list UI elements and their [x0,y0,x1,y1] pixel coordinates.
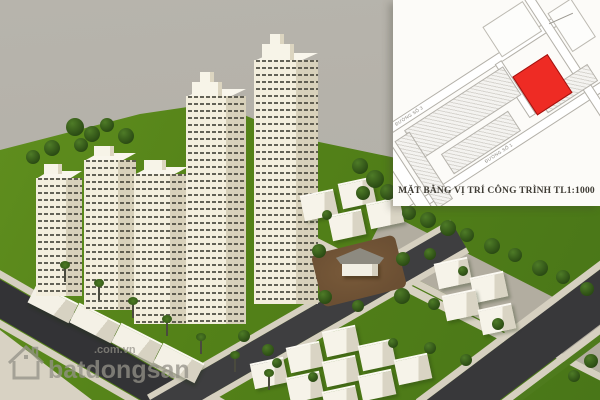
palm-tree [132,304,134,318]
watermark-suffix: .com.vn [94,344,136,356]
tower-crown [192,82,222,96]
tree [460,354,472,366]
tree [508,248,522,262]
tower-crown [94,146,114,156]
palm-tree [200,340,202,354]
tree [460,228,474,242]
tree [356,186,370,200]
tree [272,358,282,368]
tower-tall-1 [186,96,246,324]
tree [262,344,274,356]
palm-tree [166,322,168,336]
tower-left-3 [134,174,188,324]
tree [74,138,88,152]
tree [388,338,398,348]
house-icon [6,344,46,382]
tree [312,244,326,258]
palm-tree [64,268,66,282]
tree [322,210,332,220]
tree [568,370,580,382]
tower-crown [44,164,62,174]
tree [308,372,318,382]
tree [492,318,504,330]
tree [26,150,40,164]
tower-face [36,178,66,296]
tower-face [84,160,118,310]
tree [238,330,250,342]
tree [420,212,436,228]
tree [66,118,84,136]
render-canvas: ĐƯỜNG SỐ 3 ĐƯỜNG SỐ 1 ĐƯỜNG SỐ 2 ĐƯỜNG N… [0,0,600,400]
tree [428,298,440,310]
tower-crown [262,44,294,60]
tree [396,252,410,266]
tower-left-1 [36,178,82,296]
tree [402,206,416,220]
tree [440,220,456,236]
tower-tall-2 [254,60,318,304]
site-plan-inset: ĐƯỜNG SỐ 3 ĐƯỜNG SỐ 1 ĐƯỜNG SỐ 2 ĐƯỜNG N… [393,0,600,206]
tower-face [186,96,226,324]
watermark: batdongsan .com.vn [6,338,156,396]
tree [532,260,548,276]
tree [584,354,598,368]
tower-crown [270,34,284,44]
palm-tree [98,286,100,300]
tree [352,300,364,312]
tree [484,238,500,254]
tree [352,158,368,174]
site-plan-caption: MẶT BẰNG VỊ TRÍ CÔNG TRÌNH TL1:1000 [393,186,600,196]
tree [580,282,594,296]
tower-crown [200,72,214,82]
tree [424,342,436,354]
tree [118,128,134,144]
tree [44,140,60,156]
clubhouse [342,262,378,276]
tree [424,248,436,260]
tree [100,118,114,132]
villa [358,369,397,400]
site-plan-drawing: ĐƯỜNG SỐ 3 ĐƯỜNG SỐ 1 ĐƯỜNG SỐ 2 ĐƯỜNG N… [393,0,600,206]
tower-face [254,60,296,304]
tree [556,270,570,284]
tower-side [66,178,82,296]
watermark-brand: batdongsan [48,356,190,385]
tree [366,170,384,188]
tower-face [134,174,170,324]
tree [394,288,410,304]
tree [318,290,332,304]
tower-side [226,96,246,324]
palm-tree [268,376,270,390]
tower-crown [144,160,166,170]
palm-tree [234,358,236,372]
tree [458,266,468,276]
tower-left-2 [84,160,136,310]
